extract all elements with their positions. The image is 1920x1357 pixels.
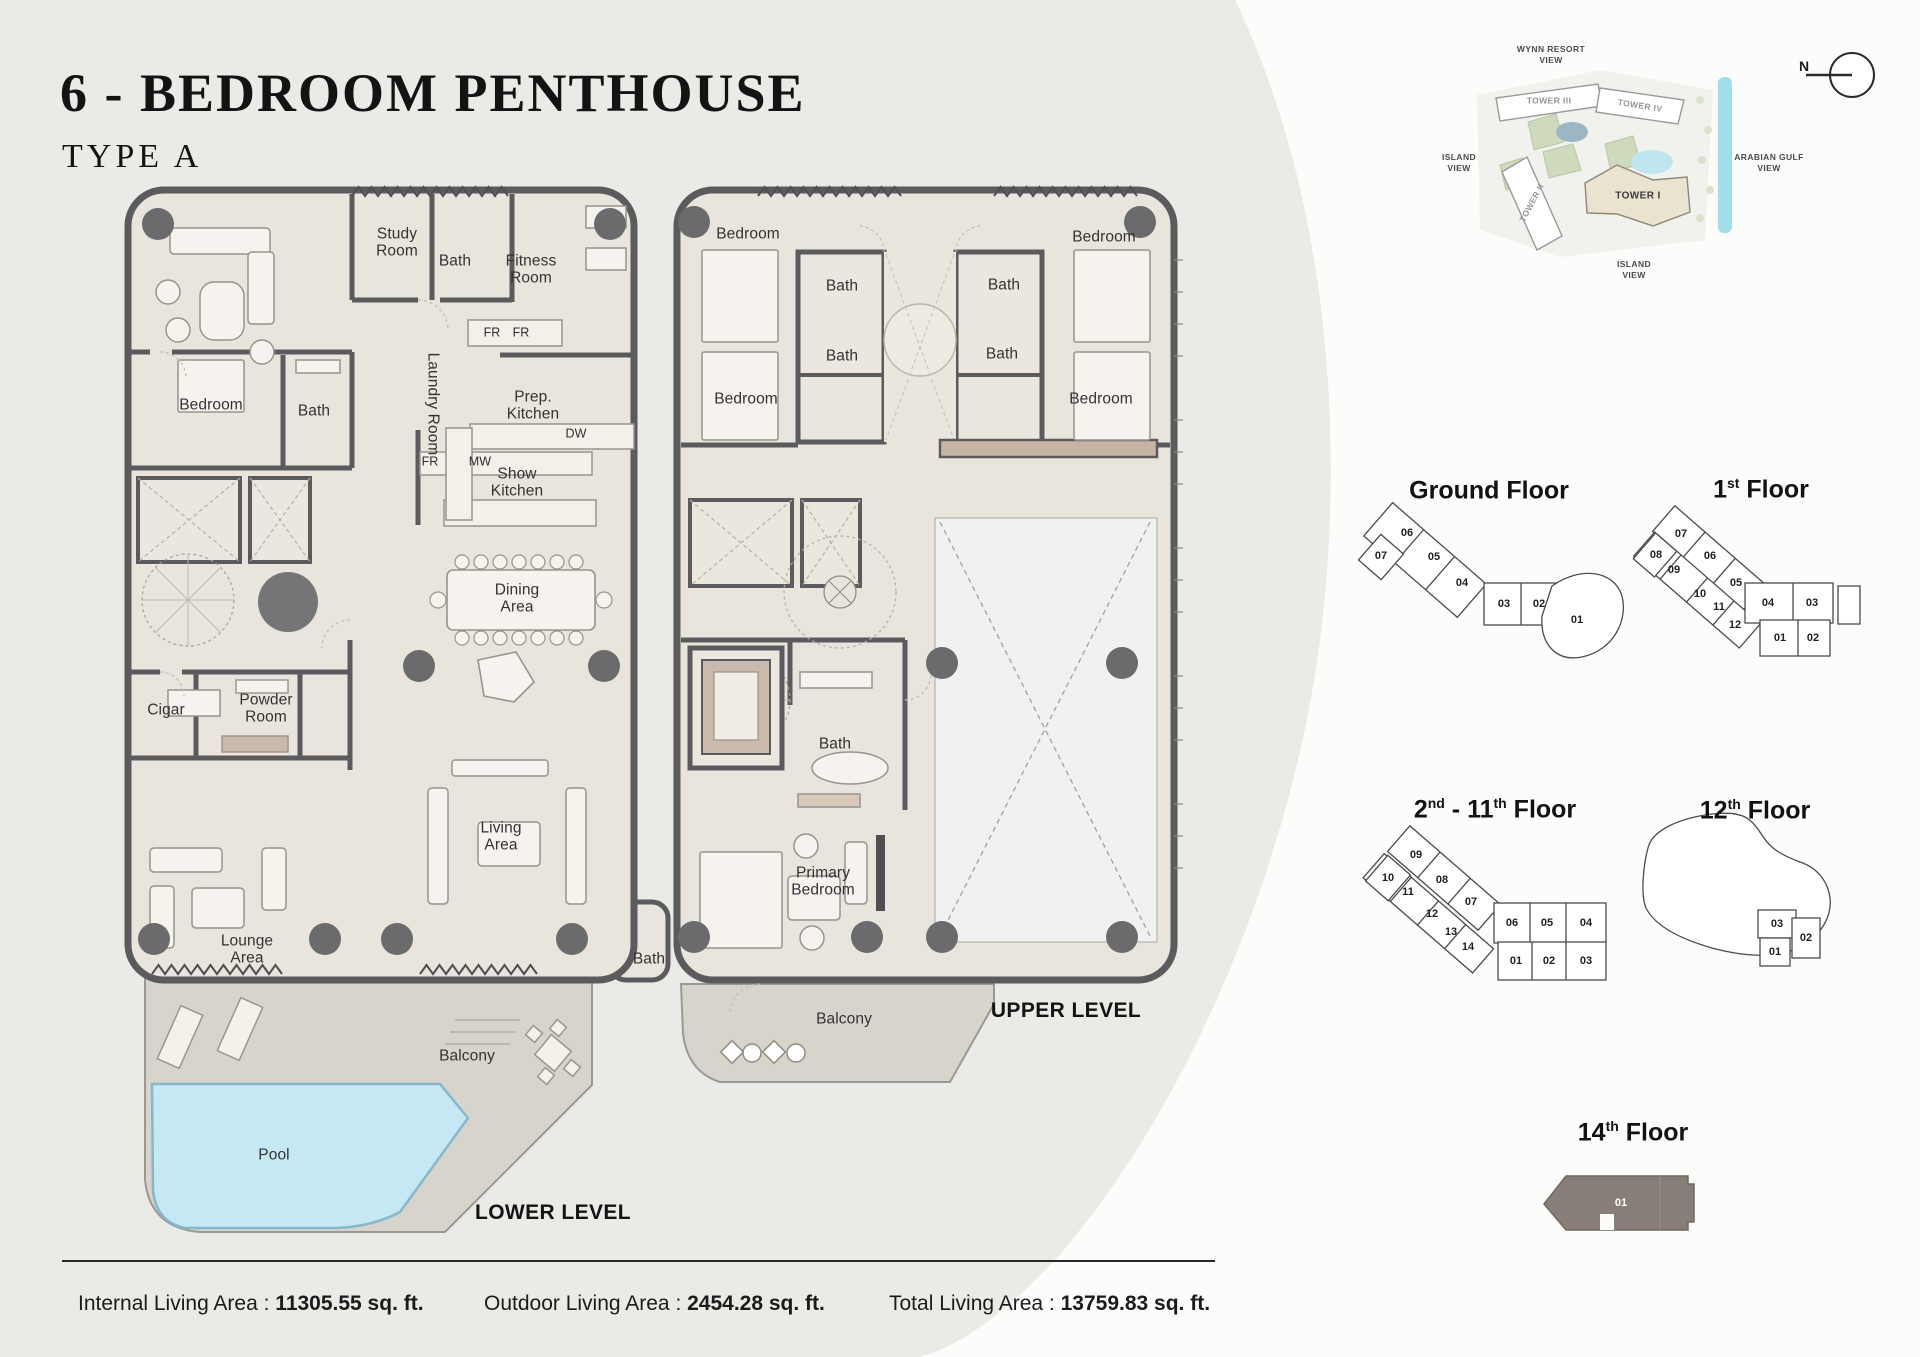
unit-first-06: 06: [1704, 550, 1716, 562]
compass-north-label: N: [1799, 58, 1809, 74]
room-label-bath-mr: Bath: [986, 347, 1018, 364]
unit-mid-09: 09: [1410, 849, 1422, 861]
room-label-fr-3: FR: [422, 455, 439, 469]
upper-balcony: [681, 984, 994, 1082]
map-label-island-view-bottom: ISLAND VIEW: [1617, 259, 1651, 281]
room-label-bedroom-br: Bedroom: [1069, 392, 1133, 409]
room-label-show-kitchen: Show Kitchen: [485, 466, 549, 499]
keyplan-title-ground: Ground Floor: [1409, 477, 1569, 506]
unit-first-11: 11: [1713, 601, 1725, 613]
unit-mid-02: 02: [1543, 955, 1555, 967]
unit-ground-07: 07: [1375, 550, 1387, 562]
room-label-prep-kitchen: Prep. Kitchen: [500, 389, 566, 422]
unit-first-07: 07: [1675, 528, 1687, 540]
unit-ground-02: 02: [1533, 598, 1545, 610]
room-label-study-room: Study Room: [364, 226, 430, 259]
unit-first-08: 08: [1650, 549, 1662, 561]
lower-level-plan: [128, 187, 668, 980]
room-label-bath-tl: Bath: [826, 279, 858, 296]
unit-mid-04: 04: [1580, 917, 1592, 929]
outdoor-living-area: Outdoor Living Area : 2454.28 sq. ft.: [484, 1292, 825, 1316]
room-label-bath-1: Bath: [439, 254, 471, 271]
room-label-fr-2: FR: [513, 326, 530, 340]
room-label-bedroom: Bedroom: [179, 398, 243, 415]
unit-mid-13: 13: [1445, 926, 1457, 938]
unit-first-04: 04: [1762, 597, 1774, 609]
compass-icon: [1806, 53, 1874, 97]
unit-mid-11: 11: [1402, 886, 1414, 898]
room-label-fr-1: FR: [484, 326, 501, 340]
room-label-powder-room: Powder Room: [234, 692, 298, 725]
room-label-fitness-room: Fitness Room: [496, 253, 566, 286]
room-label-primary-bath: Bath: [819, 737, 851, 754]
unit-first-12: 12: [1729, 619, 1741, 631]
room-label-bedroom-bl: Bedroom: [714, 392, 778, 409]
unit-first-09: 09: [1668, 564, 1680, 576]
room-label-lounge-area: Lounge Area: [217, 933, 277, 966]
upper-level-plan: [677, 187, 1183, 1014]
room-label-bath-2: Bath: [298, 404, 330, 421]
floorplan-page: 6 - BEDROOM PENTHOUSE TYPE A Study Room …: [0, 0, 1920, 1357]
room-label-bath-ml: Bath: [826, 349, 858, 366]
unit-mid-14: 14: [1462, 941, 1474, 953]
unit-ground-03: 03: [1498, 598, 1510, 610]
unit-mid-08: 08: [1436, 874, 1448, 886]
unit-mid-01: 01: [1510, 955, 1522, 967]
page-title: 6 - BEDROOM PENTHOUSE: [60, 62, 806, 124]
room-label-bath-3: Bath: [633, 952, 665, 969]
total-living-area: Total Living Area : 13759.83 sq. ft.: [889, 1292, 1210, 1316]
room-label-dining-area: Dining Area: [490, 582, 544, 615]
upper-level-label: UPPER LEVEL: [991, 999, 1141, 1023]
unit-mid-06: 06: [1506, 917, 1518, 929]
unit-first-03: 03: [1806, 597, 1818, 609]
room-label-dw: DW: [565, 427, 586, 441]
room-label-pool: Pool: [258, 1148, 289, 1165]
unit-first-01: 01: [1774, 632, 1786, 644]
unit-mid-07: 07: [1465, 896, 1477, 908]
footer-divider: [62, 1260, 1215, 1262]
keyplan-mid: [1363, 826, 1606, 980]
room-label-cigar: Cigar: [147, 703, 185, 720]
map-label-island-view-left: ISLAND VIEW: [1442, 152, 1476, 174]
room-label-bath-tr: Bath: [988, 278, 1020, 295]
keyplan-title-mid: 2nd - 11th Floor: [1414, 796, 1576, 825]
room-label-living-area: Living Area: [475, 820, 527, 853]
unit-ground-01: 01: [1571, 614, 1583, 626]
unit-mid-03: 03: [1580, 955, 1592, 967]
page-subtitle: TYPE A: [62, 138, 202, 176]
room-label-balcony-upper: Balcony: [816, 1012, 872, 1029]
unit-twelfth-01: 01: [1769, 946, 1781, 958]
keyplan-title-twelfth: 12th Floor: [1700, 797, 1810, 826]
unit-mid-12: 12: [1426, 908, 1438, 920]
map-label-tower-3: TOWER III: [1527, 95, 1572, 106]
keyplan-title-fourteenth: 14th Floor: [1578, 1119, 1688, 1148]
map-label-wynn-resort-view: WYNN RESORT VIEW: [1517, 44, 1585, 66]
keyplan-first: [1633, 506, 1860, 656]
room-label-laundry-room: Laundry Room: [424, 353, 441, 456]
unit-mid-10: 10: [1382, 872, 1394, 884]
unit-twelfth-02: 02: [1800, 932, 1812, 944]
room-label-balcony-lower: Balcony: [439, 1049, 495, 1066]
unit-ground-05: 05: [1428, 551, 1440, 563]
map-label-tower-1: TOWER I: [1615, 190, 1660, 203]
unit-mid-05: 05: [1541, 917, 1553, 929]
map-label-arabian-gulf-view: ARABIAN GULF VIEW: [1734, 152, 1804, 174]
internal-living-area: Internal Living Area : 11305.55 sq. ft.: [78, 1292, 424, 1316]
unit-ground-06: 06: [1401, 527, 1413, 539]
unit-first-02: 02: [1807, 632, 1819, 644]
unit-first-05: 05: [1730, 577, 1742, 589]
unit-twelfth-03: 03: [1771, 918, 1783, 930]
site-map: [1477, 53, 1874, 257]
unit-fourteenth-01: 01: [1615, 1197, 1627, 1209]
keyplan-title-first: 1st Floor: [1713, 476, 1809, 505]
unit-ground-04: 04: [1456, 577, 1468, 589]
room-label-bedroom-tl: Bedroom: [716, 227, 780, 244]
room-label-bedroom-tr: Bedroom: [1072, 230, 1136, 247]
keyplan-ground: [1359, 503, 1624, 658]
unit-first-10: 10: [1694, 588, 1706, 600]
lower-terrace: [145, 978, 592, 1232]
lower-level-label: LOWER LEVEL: [475, 1201, 631, 1225]
room-label-primary-bedroom: Primary Bedroom: [783, 865, 863, 898]
